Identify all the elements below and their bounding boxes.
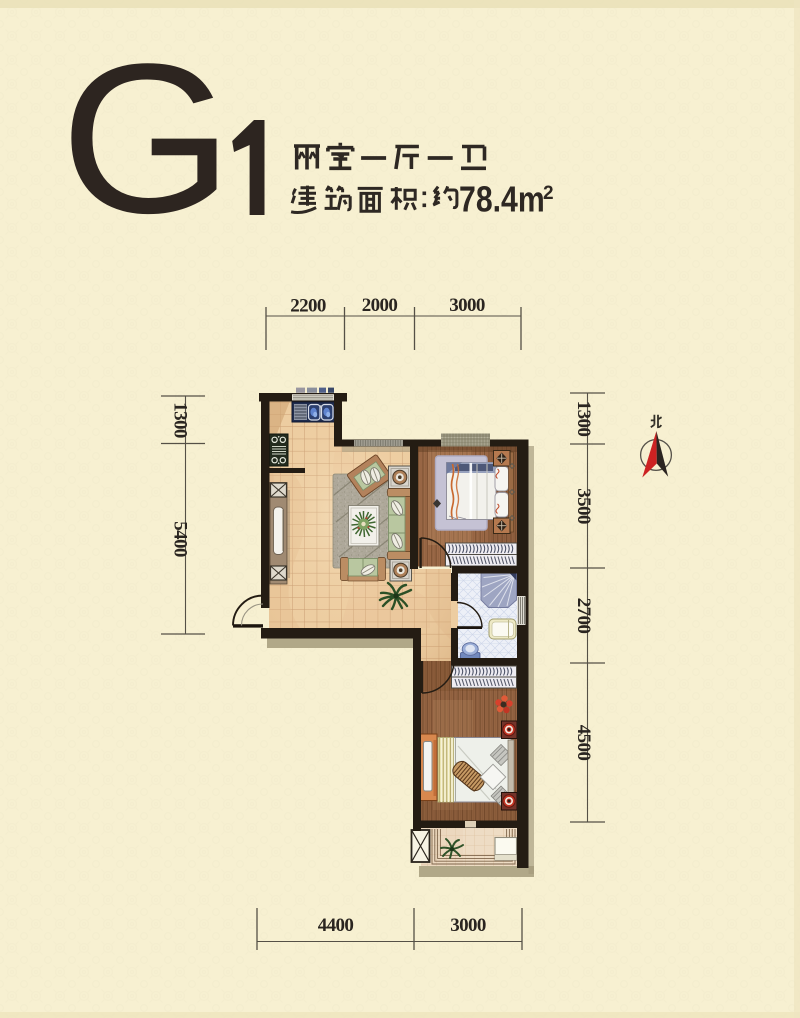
svg-text:2700: 2700 — [573, 598, 594, 634]
svg-text:4400: 4400 — [318, 915, 354, 936]
svg-text:2: 2 — [543, 183, 554, 204]
svg-text:3000: 3000 — [450, 915, 486, 936]
svg-text:3000: 3000 — [449, 295, 485, 316]
svg-text:1300: 1300 — [573, 401, 594, 437]
svg-text:2000: 2000 — [362, 295, 398, 316]
svg-text:3500: 3500 — [573, 488, 594, 524]
svg-text:4500: 4500 — [573, 725, 594, 761]
svg-text:5400: 5400 — [170, 521, 191, 557]
svg-text:1300: 1300 — [170, 402, 191, 438]
svg-text:G: G — [60, 20, 233, 258]
svg-text:2200: 2200 — [290, 296, 326, 317]
svg-text:78.4m: 78.4m — [459, 180, 545, 220]
